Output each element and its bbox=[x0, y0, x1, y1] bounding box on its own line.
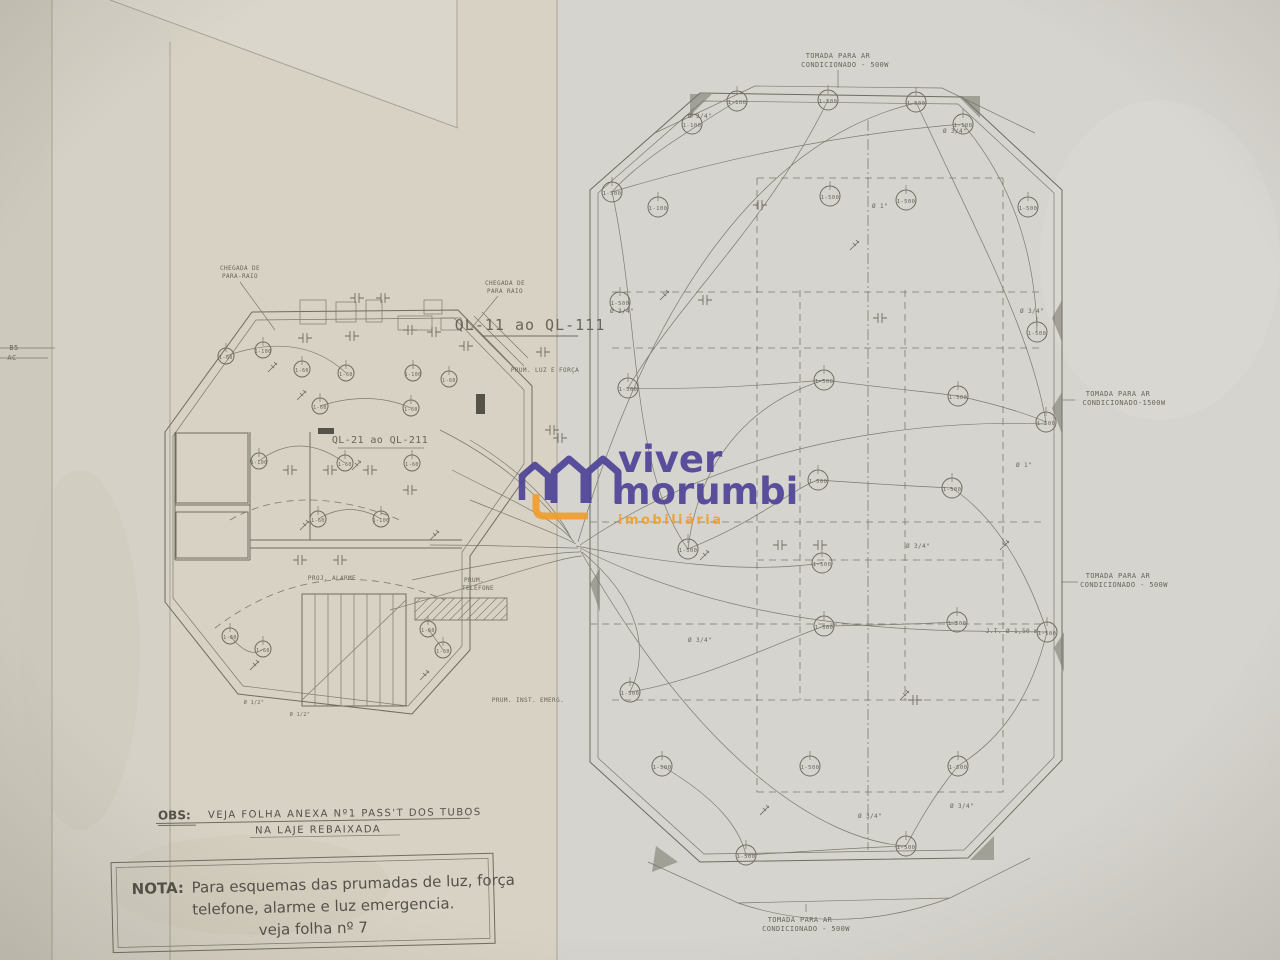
blueprint-photo: 1-1001-5001-5001-1001-1001-5001-1001-500… bbox=[0, 0, 1280, 960]
photo-vignette bbox=[0, 0, 1280, 960]
blueprint-canvas: 1-1001-5001-5001-1001-1001-5001-1001-500… bbox=[0, 0, 1280, 960]
